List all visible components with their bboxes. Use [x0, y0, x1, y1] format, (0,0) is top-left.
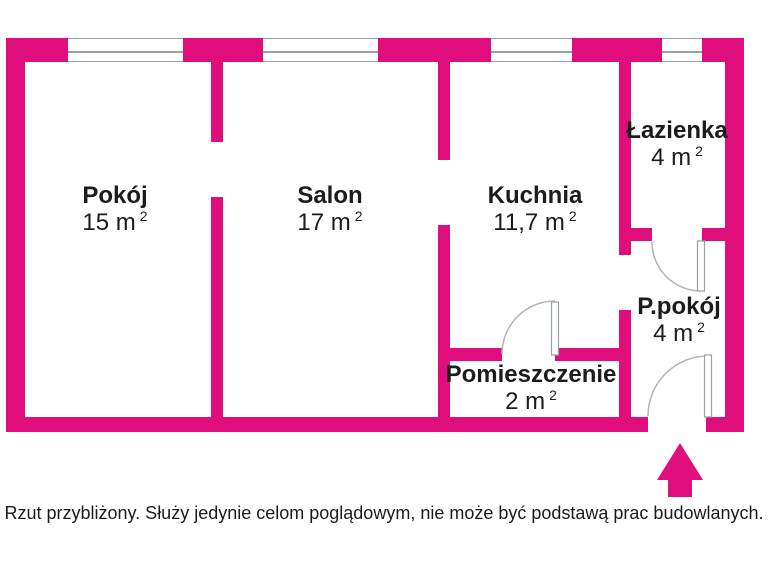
room-area: 2 m2	[433, 388, 629, 415]
door-arc	[652, 242, 701, 291]
room-label-pomieszczenie: Pomieszczenie 2 m2	[433, 362, 629, 415]
door-lazienka	[652, 241, 705, 291]
room-name: Kuchnia	[445, 183, 625, 209]
room-area: 4 m2	[609, 320, 749, 347]
door-pomieszczenie	[502, 301, 559, 355]
entrance-arrow-icon	[657, 443, 703, 497]
room-area: 4 m2	[607, 144, 747, 171]
room-label-lazienka: Łazienka 4 m2	[607, 118, 747, 171]
doors-overlay	[0, 0, 768, 563]
room-name: P.pokój	[609, 294, 749, 320]
room-area: 17 m2	[250, 209, 410, 236]
disclaimer-text: Rzut przybliżony. Służy jedynie celom po…	[0, 503, 768, 524]
door-entrance	[648, 355, 712, 417]
room-name: Łazienka	[607, 118, 747, 144]
floor-plan: Pokój 15 m2 Salon 17 m2 Kuchnia 11,7 m2 …	[0, 0, 768, 563]
door-leaf	[698, 241, 705, 291]
room-name: Pokój	[35, 183, 195, 209]
room-name: Pomieszczenie	[433, 362, 629, 388]
door-arc	[648, 356, 708, 416]
door-arc	[502, 301, 555, 354]
room-area: 11,7 m2	[445, 209, 625, 236]
room-label-kuchnia: Kuchnia 11,7 m2	[445, 183, 625, 236]
room-area: 15 m2	[35, 209, 195, 236]
room-name: Salon	[250, 183, 410, 209]
room-label-pokoj: Pokój 15 m2	[35, 183, 195, 236]
door-leaf	[552, 302, 559, 355]
room-label-ppokoj: P.pokój 4 m2	[609, 294, 749, 347]
door-leaf	[705, 355, 712, 417]
room-label-salon: Salon 17 m2	[250, 183, 410, 236]
